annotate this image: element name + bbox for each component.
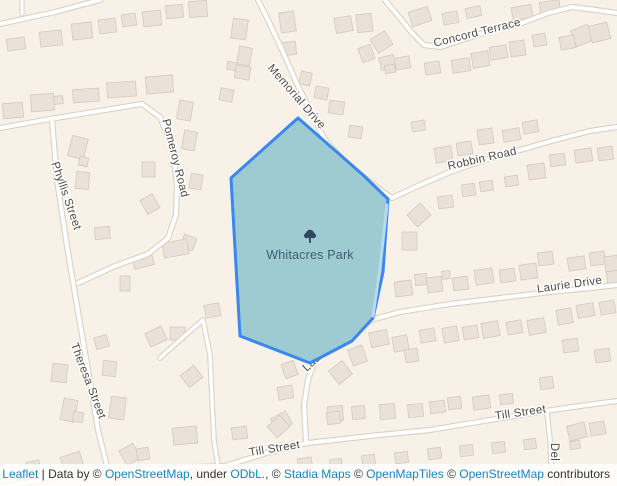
- building: [348, 125, 363, 139]
- building: [527, 163, 546, 180]
- building: [71, 22, 93, 40]
- building: [411, 120, 426, 132]
- building: [98, 18, 117, 34]
- building: [502, 128, 521, 143]
- building: [2, 102, 23, 119]
- building: [437, 195, 454, 209]
- building: [181, 130, 197, 151]
- building: [527, 318, 546, 336]
- building: [145, 75, 173, 94]
- leaflet-map[interactable]: Memorial DriveConcord TerraceRobbin Road…: [0, 0, 617, 486]
- building: [102, 360, 116, 376]
- building: [234, 65, 251, 80]
- building: [474, 268, 494, 285]
- building: [231, 18, 249, 40]
- building: [314, 86, 329, 100]
- building: [477, 128, 494, 145]
- building: [95, 226, 111, 239]
- building: [499, 268, 516, 283]
- building: [519, 263, 538, 280]
- building: [504, 175, 518, 187]
- building: [279, 11, 297, 33]
- building: [522, 120, 539, 134]
- building: [539, 376, 554, 390]
- building: [107, 81, 137, 98]
- building: [204, 303, 221, 318]
- attribution-link-openstreetmap-data[interactable]: OpenStreetMap: [105, 467, 190, 481]
- building: [299, 71, 312, 86]
- building: [451, 58, 471, 74]
- building: [559, 35, 576, 50]
- building: [567, 256, 586, 271]
- building: [176, 100, 193, 121]
- attribution-text-sep-5: ©: [444, 467, 460, 481]
- building: [237, 46, 253, 66]
- building: [394, 280, 413, 297]
- building: [188, 0, 207, 17]
- building: [489, 45, 508, 60]
- building: [456, 141, 473, 156]
- building: [54, 96, 64, 105]
- building: [72, 411, 83, 422]
- street-label: Del: [548, 443, 560, 461]
- building: [109, 396, 127, 420]
- building: [562, 338, 579, 353]
- building: [165, 4, 183, 18]
- building: [429, 400, 446, 414]
- building: [472, 395, 491, 410]
- building: [379, 403, 395, 419]
- park-label: Whitacres Park: [266, 248, 354, 262]
- building: [402, 232, 417, 250]
- attribution-link-openmaptiles[interactable]: OpenMapTiles: [366, 467, 444, 481]
- building: [442, 11, 459, 25]
- building: [479, 180, 493, 192]
- building: [532, 33, 547, 47]
- building: [75, 171, 90, 189]
- building: [604, 255, 617, 272]
- building: [537, 251, 554, 266]
- building: [491, 441, 505, 454]
- building: [407, 403, 423, 417]
- attribution-bar: Leaflet | Data by © OpenStreetMap, under…: [0, 464, 617, 486]
- building: [6, 37, 25, 51]
- building: [414, 273, 427, 285]
- building: [328, 100, 345, 115]
- building: [447, 396, 462, 410]
- building: [326, 411, 341, 425]
- attribution-link-odbl[interactable]: ODbL.: [230, 467, 265, 481]
- building: [424, 61, 441, 75]
- attribution-text-sep-3: , ©: [265, 467, 284, 481]
- building: [549, 153, 566, 167]
- attribution-link-openstreetmap-tiles[interactable]: OpenStreetMap: [459, 467, 544, 481]
- building: [172, 426, 197, 445]
- building: [369, 329, 390, 347]
- building: [481, 321, 500, 339]
- building: [78, 156, 89, 167]
- attribution-text-sep-4: ©: [351, 467, 367, 481]
- attribution-text-sep-1: | Data by ©: [38, 467, 105, 481]
- building: [189, 173, 203, 190]
- building: [394, 56, 411, 70]
- building: [136, 447, 150, 461]
- building: [142, 162, 155, 177]
- building: [589, 251, 606, 266]
- building: [427, 447, 441, 460]
- building: [523, 438, 536, 450]
- building: [594, 348, 611, 363]
- building: [394, 451, 408, 464]
- building: [499, 393, 513, 405]
- building: [419, 328, 436, 343]
- building: [509, 40, 526, 57]
- building: [142, 10, 161, 27]
- building: [51, 363, 68, 382]
- building: [356, 13, 373, 32]
- building: [277, 385, 294, 400]
- building: [569, 440, 580, 450]
- building: [384, 64, 395, 73]
- building: [442, 326, 459, 343]
- building: [73, 88, 100, 103]
- attribution-text-sep-6: contributors: [544, 467, 610, 481]
- building: [589, 421, 606, 436]
- building: [597, 146, 614, 161]
- building: [461, 183, 476, 197]
- building: [462, 325, 479, 340]
- building: [471, 51, 490, 68]
- building: [556, 308, 573, 325]
- map-canvas[interactable]: Memorial DriveConcord TerraceRobbin Road…: [0, 0, 617, 486]
- building: [599, 300, 616, 315]
- building: [404, 348, 419, 363]
- building: [574, 148, 593, 163]
- building: [120, 276, 130, 291]
- building: [219, 88, 234, 102]
- building: [426, 276, 443, 293]
- building: [351, 405, 365, 419]
- building: [39, 30, 62, 47]
- building: [30, 93, 54, 112]
- building: [459, 444, 473, 457]
- building: [121, 13, 137, 27]
- attribution-link-leaflet[interactable]: Leaflet: [2, 467, 38, 481]
- attribution-link-stadia-maps[interactable]: Stadia Maps: [284, 467, 351, 481]
- building: [506, 320, 523, 335]
- building: [452, 276, 469, 291]
- attribution-text-sep-2: , under: [190, 467, 231, 481]
- building: [334, 16, 353, 34]
- building: [231, 426, 248, 440]
- building: [442, 271, 451, 280]
- building: [576, 303, 595, 319]
